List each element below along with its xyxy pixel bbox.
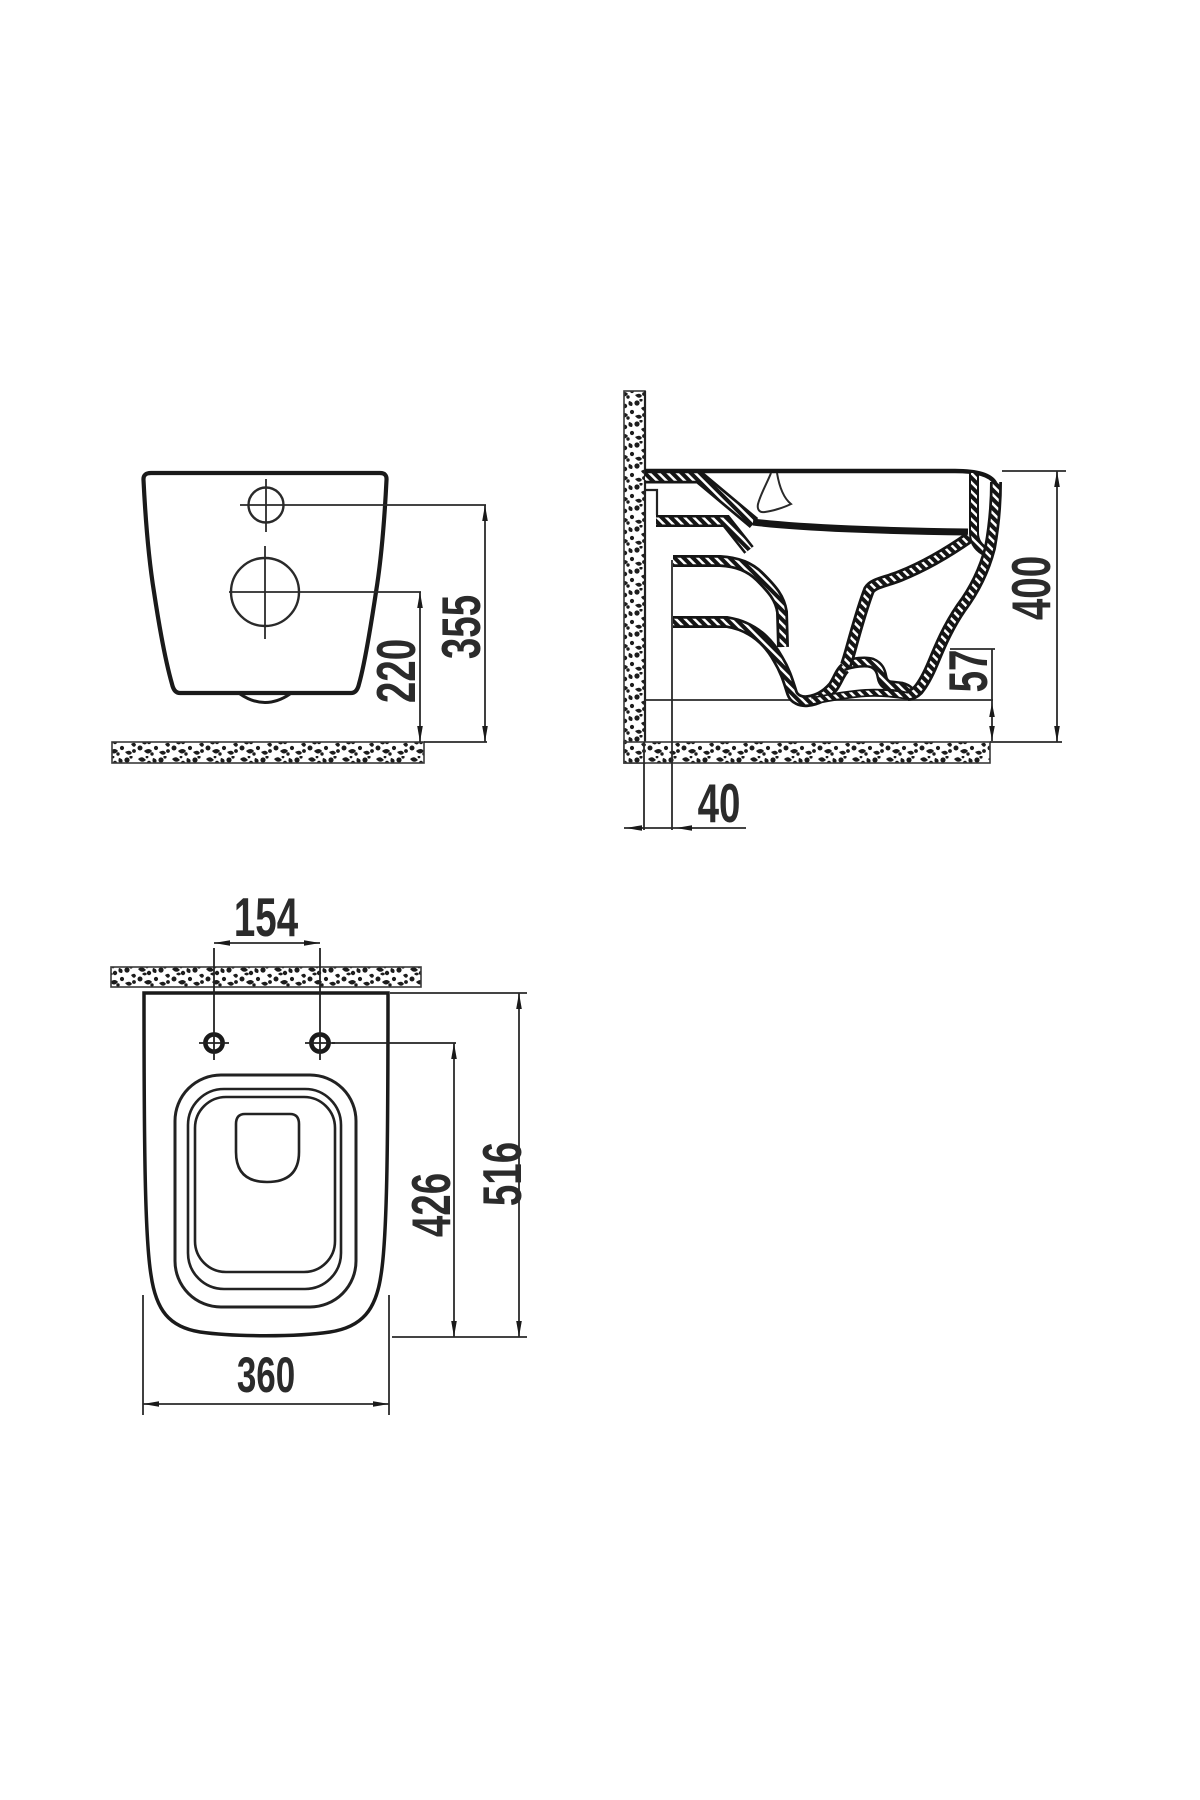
svg-text:40: 40 [698, 773, 741, 834]
svg-text:426: 426 [401, 1173, 462, 1237]
svg-text:360: 360 [237, 1348, 295, 1404]
svg-text:57: 57 [938, 650, 999, 693]
svg-text:154: 154 [234, 887, 299, 948]
svg-text:400: 400 [1001, 556, 1062, 620]
svg-text:355: 355 [431, 595, 492, 659]
svg-text:516: 516 [472, 1142, 533, 1206]
svg-text:220: 220 [366, 639, 427, 703]
